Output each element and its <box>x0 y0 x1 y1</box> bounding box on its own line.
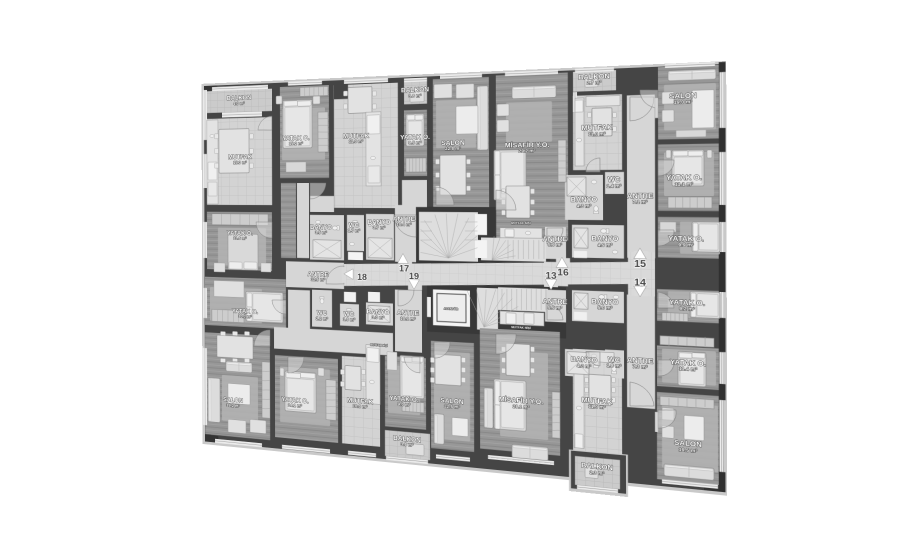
svg-text:15: 15 <box>634 258 647 270</box>
svg-text:1.4 m²: 1.4 m² <box>607 184 623 189</box>
svg-text:5.9 m²: 5.9 m² <box>548 305 563 311</box>
svg-text:2.7 m²: 2.7 m² <box>587 80 603 86</box>
svg-text:22.8 m²: 22.8 m² <box>445 146 462 151</box>
svg-text:2.2 m²: 2.2 m² <box>316 316 329 321</box>
svg-text:18: 18 <box>357 272 368 283</box>
svg-text:4.3 m²: 4.3 m² <box>577 204 592 209</box>
svg-text:12.5 m²: 12.5 m² <box>311 277 326 282</box>
svg-text:7.1 m²: 7.1 m² <box>632 200 648 205</box>
svg-text:MUTFAK NİŞİ: MUTFAK NİŞİ <box>511 221 531 225</box>
svg-text:9.9 m²: 9.9 m² <box>678 243 695 248</box>
svg-text:11.1 m²: 11.1 m² <box>675 182 694 187</box>
svg-text:10.4 m²: 10.4 m² <box>396 222 412 227</box>
svg-text:11.4 m²: 11.4 m² <box>679 366 698 372</box>
svg-text:3.8 m²: 3.8 m² <box>409 93 423 98</box>
svg-text:19: 19 <box>409 271 420 282</box>
svg-text:4.2 m²: 4.2 m² <box>577 363 592 369</box>
svg-text:10.2 m²: 10.2 m² <box>238 314 252 319</box>
svg-text:11.0 m²: 11.0 m² <box>588 131 606 136</box>
svg-text:1.8 m²: 1.8 m² <box>607 363 623 369</box>
svg-text:4.3 m²: 4.3 m² <box>233 101 245 106</box>
svg-text:3.5 m²: 3.5 m² <box>315 230 328 235</box>
svg-text:19.0 m²: 19.0 m² <box>674 99 693 105</box>
svg-text:14: 14 <box>634 276 647 288</box>
svg-text:3.3 m²: 3.3 m² <box>372 315 385 320</box>
svg-text:1.8 m²: 1.8 m² <box>343 317 356 322</box>
svg-text:5.0 m²: 5.0 m² <box>598 305 614 311</box>
svg-text:15.3 m²: 15.3 m² <box>233 160 247 165</box>
svg-text:7.3 m²: 7.3 m² <box>632 364 648 370</box>
svg-text:3.7 m²: 3.7 m² <box>373 225 386 230</box>
svg-text:4.9 m²: 4.9 m² <box>598 243 614 248</box>
svg-text:11.6 m²: 11.6 m² <box>233 236 247 241</box>
svg-text:11.0 m²: 11.0 m² <box>349 139 364 144</box>
svg-text:9.2 m²: 9.2 m² <box>679 306 696 312</box>
svg-text:10.1 m²: 10.1 m² <box>400 316 416 321</box>
svg-text:29.2 m²: 29.2 m² <box>519 148 537 153</box>
svg-text:9.5 m²: 9.5 m² <box>409 140 423 145</box>
svg-text:5.9 m²: 5.9 m² <box>548 243 563 248</box>
svg-text:1.7 m²: 1.7 m² <box>348 228 361 233</box>
svg-text:15.2 m²: 15.2 m² <box>289 141 304 146</box>
svg-text:16: 16 <box>557 267 569 278</box>
svg-text:9.0 m²: 9.0 m² <box>398 402 412 408</box>
svg-text:13: 13 <box>545 270 557 281</box>
